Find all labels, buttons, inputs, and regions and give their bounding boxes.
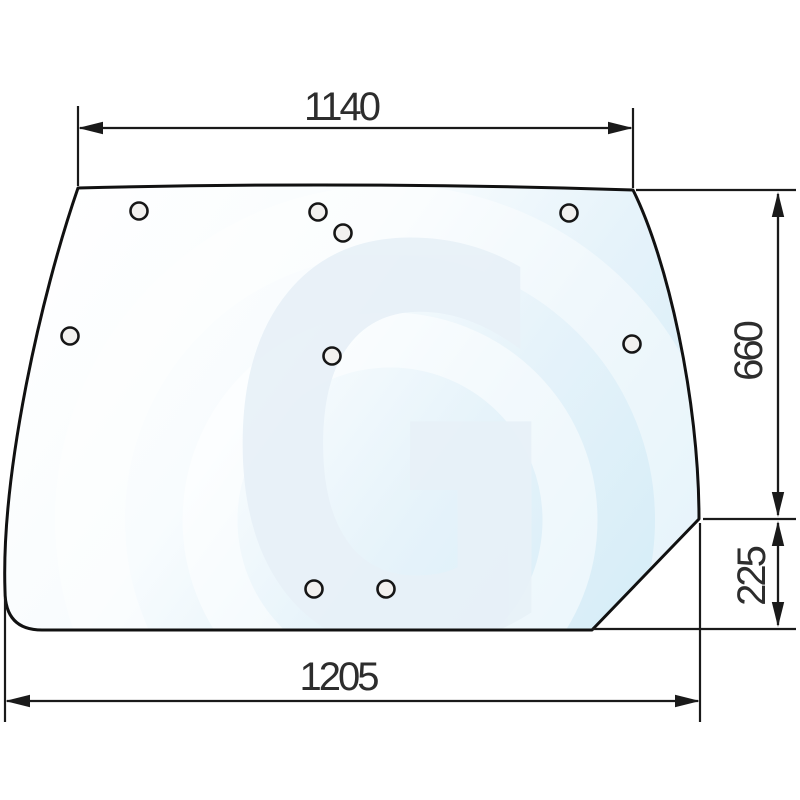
mounting-hole xyxy=(62,328,79,345)
drawing-canvas: G 1140 660 xyxy=(0,0,800,800)
mounting-hole xyxy=(131,203,148,220)
arrow-down-icon xyxy=(772,492,784,517)
mounting-hole xyxy=(306,581,323,598)
mounting-hole xyxy=(324,348,341,365)
arrow-right-icon xyxy=(608,122,633,134)
dimension-top-width: 1140 xyxy=(78,85,633,188)
arrow-left-icon xyxy=(78,122,103,134)
mounting-hole xyxy=(561,205,578,222)
arrow-right-icon xyxy=(675,695,700,707)
arrow-up-icon xyxy=(772,521,784,546)
dimension-label-right-upper: 660 xyxy=(727,321,771,380)
dimension-label-bottom: 1205 xyxy=(300,655,379,699)
arrow-left-icon xyxy=(5,695,30,707)
mounting-hole xyxy=(624,336,641,353)
dimension-label-top: 1140 xyxy=(304,85,380,129)
mounting-hole xyxy=(310,204,327,221)
technical-drawing: G 1140 660 xyxy=(0,0,800,800)
mounting-hole xyxy=(335,225,352,242)
mounting-hole xyxy=(378,581,395,598)
watermark-letter: G xyxy=(222,136,562,771)
dimension-label-right-lower: 225 xyxy=(730,546,774,605)
arrow-up-icon xyxy=(772,192,784,217)
